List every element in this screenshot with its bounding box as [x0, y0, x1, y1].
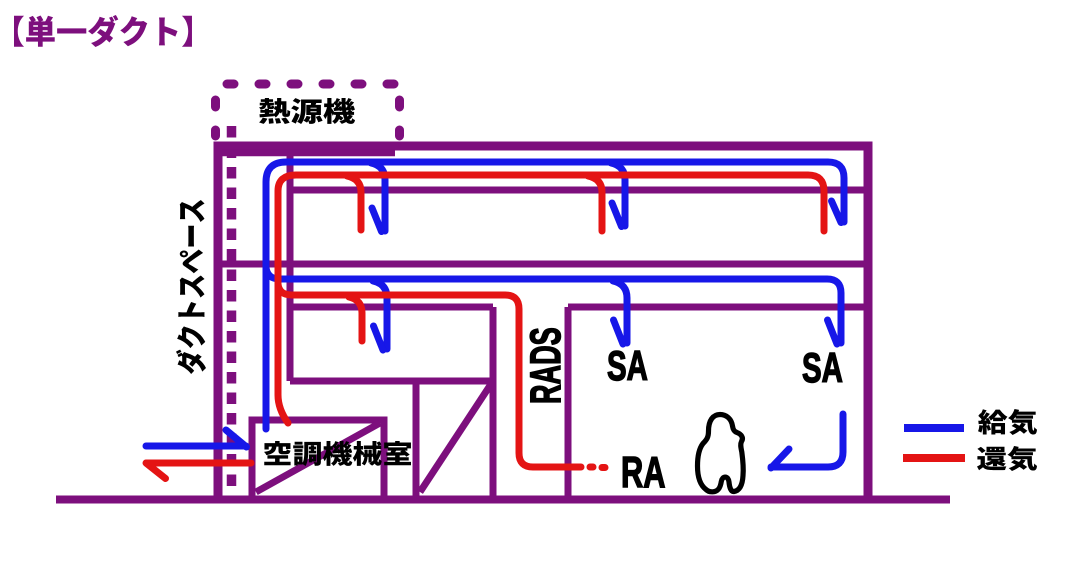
- svg-text:RADS: RADS: [521, 327, 570, 404]
- svg-text:RA: RA: [621, 449, 665, 498]
- svg-text:SA: SA: [607, 342, 648, 390]
- svg-text:SA: SA: [802, 344, 843, 392]
